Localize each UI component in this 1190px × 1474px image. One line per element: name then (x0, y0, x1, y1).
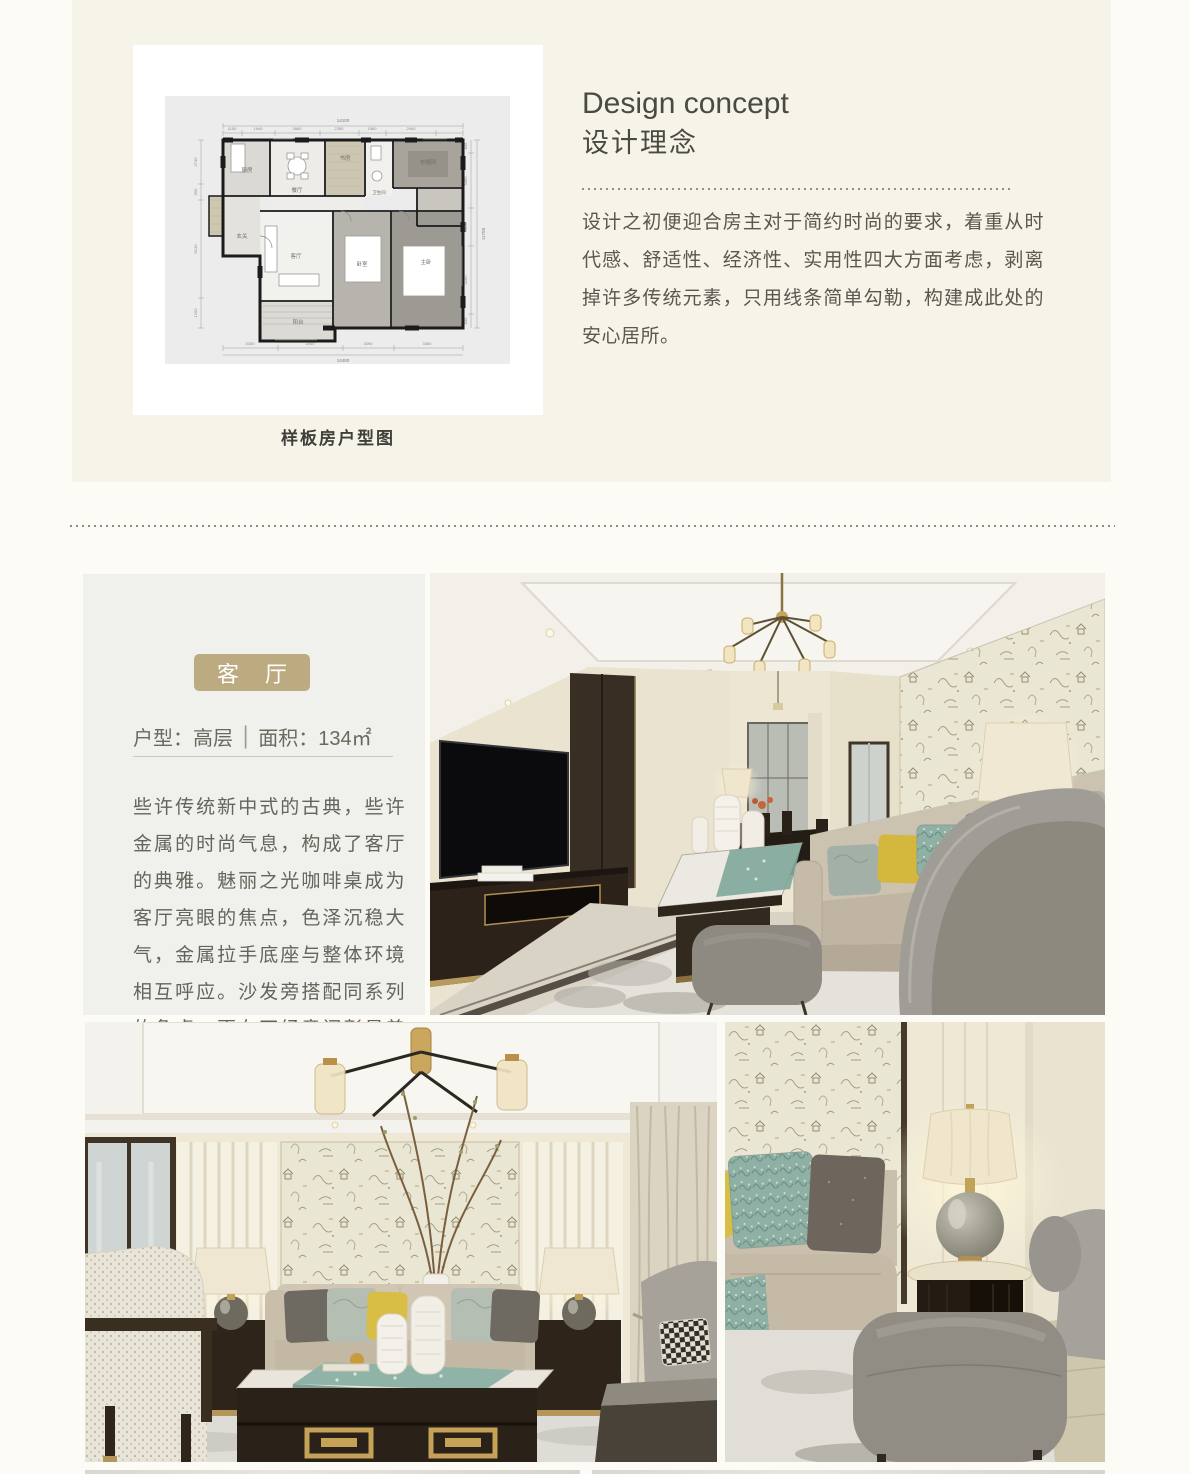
svg-text:卧室: 卧室 (356, 260, 368, 268)
unit-type: 户型：高层 (133, 722, 233, 751)
svg-text:840: 840 (463, 142, 468, 149)
ottoman (692, 925, 822, 1015)
meta-divider: | (243, 722, 248, 751)
svg-text:2660: 2660 (293, 126, 303, 131)
svg-text:14100: 14100 (337, 118, 350, 123)
floorplan-caption: 样板房户型图 (133, 424, 543, 449)
next-photo-sliver (85, 1470, 580, 1474)
svg-text:餐厅: 餐厅 (291, 186, 303, 194)
svg-text:1940: 1940 (254, 126, 264, 131)
room-badge: 客 厅 (194, 654, 310, 691)
svg-text:卫生间: 卫生间 (372, 189, 386, 196)
living-room-panel: 客 厅 户型：高层 | 面积：134㎡ 些许传统新中式的古典，些许金属的时尚气息… (83, 574, 425, 1015)
armchair-left (85, 1246, 217, 1462)
svg-text:990: 990 (193, 188, 198, 195)
concept-title-en: Design concept (582, 86, 1044, 122)
houndstooth-pillow (659, 1318, 711, 1366)
concept-dotted-divider (582, 188, 1012, 190)
svg-text:2940: 2940 (407, 126, 417, 131)
svg-text:书房: 书房 (339, 154, 351, 162)
svg-text:3090: 3090 (364, 341, 374, 346)
lamp-ball-base (936, 1192, 1004, 1260)
carved-vase (377, 1314, 407, 1374)
svg-text:1100: 1100 (228, 126, 237, 131)
concept-title-zh: 设计理念 (582, 126, 1044, 160)
article-page: 厨房 餐厅 书房 卫生间 衣帽间 玄关 客厅 卧室 主卧 阳台 (0, 0, 1190, 1474)
svg-text:840: 840 (463, 317, 468, 324)
svg-text:4260: 4260 (463, 275, 468, 285)
photo-living-room-main (430, 573, 1105, 1015)
photo-living-room-front (85, 1022, 717, 1462)
svg-text:主卧: 主卧 (420, 258, 432, 266)
svg-text:2740: 2740 (193, 157, 198, 167)
meta-underline (133, 756, 393, 757)
gray-ottoman (853, 1312, 1067, 1462)
svg-text:客厅: 客厅 (290, 252, 302, 260)
photo-lamp-closeup (725, 1022, 1105, 1462)
svg-text:1560: 1560 (368, 126, 378, 131)
carved-vase (411, 1296, 445, 1374)
svg-text:2350: 2350 (463, 222, 468, 232)
svg-text:3940: 3940 (306, 341, 316, 346)
floorplan-card: 厨房 餐厅 书房 卫生间 衣帽间 玄关 客厅 卧室 主卧 阳台 (133, 45, 543, 415)
svg-text:3360: 3360 (423, 341, 433, 346)
teal-pillow (728, 1151, 818, 1249)
tv-screen (440, 741, 568, 886)
concept-block: Design concept 设计理念 设计之初便迎合房主对于简约时尚的要求，着… (582, 86, 1044, 375)
svg-text:玄关: 玄关 (236, 232, 248, 240)
svg-text:2280: 2280 (335, 126, 345, 131)
svg-text:6130: 6130 (193, 244, 198, 254)
svg-text:3460: 3460 (463, 176, 468, 186)
svg-text:14480: 14480 (337, 358, 350, 363)
svg-text:阳台: 阳台 (292, 318, 304, 326)
dark-pillow (807, 1154, 886, 1254)
floorplan-image: 厨房 餐厅 书房 卫生间 衣帽间 玄关 客厅 卧室 主卧 阳台 (165, 96, 510, 364)
unit-meta: 户型：高层 | 面积：134㎡ (133, 722, 372, 751)
unit-area: 面积：134㎡ (258, 722, 371, 751)
svg-text:1200: 1200 (193, 308, 198, 318)
concept-body: 设计之初便迎合房主对于简约时尚的要求，着重从时代感、舒适性、经济性、实用性四大方… (582, 204, 1044, 356)
ceiling (85, 1022, 717, 1140)
svg-text:11750: 11750 (481, 227, 486, 240)
svg-text:衣帽间: 衣帽间 (420, 158, 437, 166)
next-photo-sliver (592, 1470, 1105, 1474)
svg-text:3330: 3330 (246, 341, 256, 346)
design-concept-section: 厨房 餐厅 书房 卫生间 衣帽间 玄关 客厅 卧室 主卧 阳台 (72, 0, 1111, 482)
svg-text:厨房: 厨房 (241, 166, 253, 174)
section-dotted-divider (70, 525, 1115, 527)
